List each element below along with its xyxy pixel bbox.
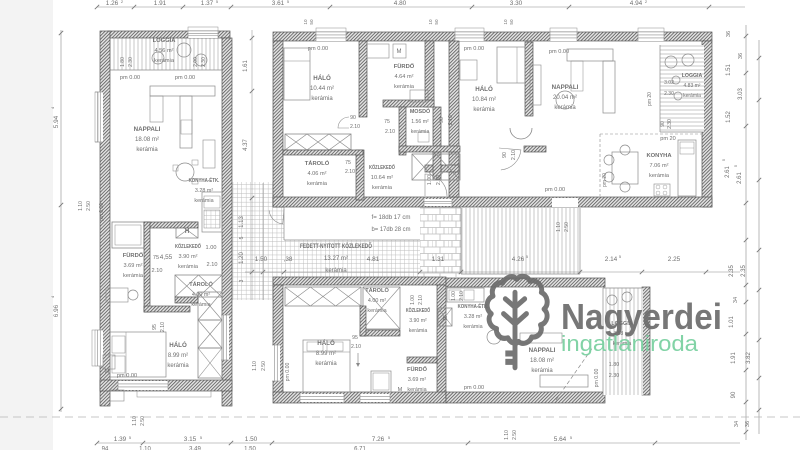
svg-text:4.83 m²: 4.83 m² bbox=[684, 83, 701, 89]
svg-text:kerámia: kerámia bbox=[194, 198, 213, 204]
svg-text:kerámia: kerámia bbox=[372, 185, 393, 191]
svg-text:FÜRDŐ: FÜRDŐ bbox=[407, 366, 428, 373]
svg-text:2.30: 2.30 bbox=[609, 373, 620, 379]
svg-text:1.00: 1.00 bbox=[206, 245, 217, 251]
svg-text:1.13: 1.13 bbox=[239, 216, 245, 228]
svg-text:5: 5 bbox=[239, 236, 245, 239]
svg-text:1.52: 1.52 bbox=[726, 111, 732, 123]
svg-text:2.35: 2.35 bbox=[741, 265, 747, 277]
svg-text:1.80: 1.80 bbox=[609, 362, 620, 368]
svg-text:90: 90 bbox=[731, 391, 737, 398]
svg-text:pm 0.00: pm 0.00 bbox=[99, 203, 105, 221]
svg-text:4.64 m²: 4.64 m² bbox=[395, 74, 414, 80]
svg-text:kerámia: kerámia bbox=[394, 84, 415, 90]
svg-text:1.20: 1.20 bbox=[239, 252, 245, 264]
svg-text:pm 0.00: pm 0.00 bbox=[285, 363, 291, 382]
svg-text:10.44 m²: 10.44 m² bbox=[310, 86, 334, 92]
svg-text:3.69 m²: 3.69 m² bbox=[408, 377, 426, 383]
svg-text:3.28 m²: 3.28 m² bbox=[195, 188, 213, 194]
svg-text:34: 34 bbox=[734, 421, 740, 427]
svg-text:1.10: 1.10 bbox=[556, 222, 562, 232]
svg-text:1.10: 1.10 bbox=[139, 447, 151, 450]
svg-text:H: H bbox=[185, 229, 189, 235]
svg-text:kerámia: kerámia bbox=[409, 328, 428, 334]
svg-text:1.10: 1.10 bbox=[504, 430, 510, 440]
svg-text:18.08 m²: 18.08 m² bbox=[135, 137, 159, 143]
svg-text:75: 75 bbox=[153, 255, 159, 261]
svg-text:5.64: 5.64 bbox=[554, 436, 567, 443]
svg-text:HÁLÓ: HÁLÓ bbox=[313, 74, 331, 82]
svg-text:3.30: 3.30 bbox=[510, 0, 523, 7]
svg-text:3.02: 3.02 bbox=[664, 80, 674, 86]
svg-text:FÜRDŐ: FÜRDŐ bbox=[123, 252, 144, 259]
svg-text:2.25: 2.25 bbox=[668, 256, 681, 263]
svg-text:90: 90 bbox=[502, 152, 508, 158]
svg-text:3.03: 3.03 bbox=[738, 88, 744, 100]
svg-text:7.06 m²: 7.06 m² bbox=[650, 163, 669, 169]
svg-text:2.30: 2.30 bbox=[128, 57, 134, 67]
svg-text:95: 95 bbox=[152, 324, 158, 330]
svg-text:kerámia: kerámia bbox=[307, 181, 328, 187]
svg-text:50: 50 bbox=[509, 19, 514, 25]
svg-text:34: 34 bbox=[733, 297, 739, 303]
svg-text:2.10: 2.10 bbox=[160, 322, 166, 332]
svg-text:pm 0.00: pm 0.00 bbox=[594, 369, 600, 388]
svg-text:2.10: 2.10 bbox=[351, 344, 361, 350]
svg-text:kerámia: kerámia bbox=[554, 105, 576, 111]
svg-text:1.10: 1.10 bbox=[132, 416, 138, 426]
svg-text:KONYHA-ÉTK.: KONYHA-ÉTK. bbox=[458, 302, 489, 310]
svg-text:pm 20: pm 20 bbox=[602, 173, 608, 187]
svg-text:4.80: 4.80 bbox=[394, 0, 407, 7]
svg-text:LOGGIA: LOGGIA bbox=[153, 38, 177, 44]
svg-text:3.61: 3.61 bbox=[272, 0, 285, 7]
svg-text:NAPPALI: NAPPALI bbox=[134, 126, 161, 133]
svg-text:2.30: 2.30 bbox=[664, 91, 674, 97]
svg-text:50: 50 bbox=[434, 19, 439, 25]
svg-text:kerámia: kerámia bbox=[367, 308, 386, 314]
svg-text:KÖZLEKEDŐ: KÖZLEKEDŐ bbox=[369, 164, 395, 171]
svg-text:ingatlaniroda: ingatlaniroda bbox=[561, 331, 699, 356]
svg-text:2.50: 2.50 bbox=[564, 222, 570, 232]
svg-text:kerámia: kerámia bbox=[178, 264, 199, 270]
svg-text:KONYHA-ÉTK.: KONYHA-ÉTK. bbox=[189, 176, 220, 184]
svg-text:2.00: 2.00 bbox=[193, 57, 199, 67]
svg-text:2.14: 2.14 bbox=[605, 256, 618, 263]
svg-text:2.50: 2.50 bbox=[261, 361, 267, 371]
svg-text:kerámia: kerámia bbox=[325, 268, 347, 274]
svg-text:3.82: 3.82 bbox=[746, 352, 752, 364]
svg-text:36: 36 bbox=[726, 31, 732, 37]
svg-text:M: M bbox=[397, 49, 402, 55]
svg-text:5.94: 5.94 bbox=[53, 115, 60, 128]
svg-text:2.10: 2.10 bbox=[436, 175, 442, 185]
svg-text:94: 94 bbox=[102, 447, 109, 450]
svg-text:TÁROLÓ: TÁROLÓ bbox=[365, 286, 389, 294]
svg-text:NAPPALI: NAPPALI bbox=[552, 84, 579, 91]
svg-text:4,55: 4,55 bbox=[160, 254, 173, 261]
svg-text:1.61: 1.61 bbox=[243, 60, 249, 72]
svg-text:6.71: 6.71 bbox=[354, 447, 366, 450]
svg-text:1.50: 1.50 bbox=[255, 256, 268, 263]
svg-text:pm 0.00: pm 0.00 bbox=[175, 75, 195, 81]
svg-text:4.56 m²: 4.56 m² bbox=[155, 48, 174, 54]
svg-text:75: 75 bbox=[345, 160, 351, 166]
svg-text:2.61: 2.61 bbox=[725, 166, 731, 178]
svg-text:3: 3 bbox=[239, 279, 245, 282]
svg-text:LOGGIA: LOGGIA bbox=[682, 73, 703, 79]
svg-text:NAPPALI: NAPPALI bbox=[529, 347, 556, 354]
svg-text:1.50: 1.50 bbox=[245, 436, 258, 443]
svg-text:7.26: 7.26 bbox=[372, 436, 385, 443]
svg-text:3.49: 3.49 bbox=[189, 447, 201, 450]
svg-text:TÁROLÓ: TÁROLÓ bbox=[305, 159, 330, 167]
svg-text:KÖZLEKEDŐ: KÖZLEKEDŐ bbox=[175, 243, 201, 250]
svg-text:4.37: 4.37 bbox=[243, 139, 249, 151]
svg-text:kerámia: kerámia bbox=[683, 93, 701, 99]
svg-text:M: M bbox=[398, 387, 403, 393]
svg-text:10.84 m²: 10.84 m² bbox=[472, 97, 496, 103]
svg-text:36: 36 bbox=[738, 53, 744, 59]
svg-text:1.26: 1.26 bbox=[106, 0, 119, 7]
svg-text:2.10: 2.10 bbox=[448, 115, 454, 125]
svg-text:4.81: 4.81 bbox=[367, 256, 380, 263]
svg-text:kerámia: kerámia bbox=[649, 173, 670, 179]
svg-text:pm 0.00: pm 0.00 bbox=[464, 385, 484, 391]
svg-text:4.06 m²: 4.06 m² bbox=[308, 171, 327, 177]
svg-text:H: H bbox=[443, 316, 447, 322]
svg-text:90: 90 bbox=[439, 117, 445, 123]
svg-text:pm 0.00: pm 0.00 bbox=[545, 187, 565, 193]
svg-text:3.15: 3.15 bbox=[184, 436, 197, 443]
svg-text:HÁLÓ: HÁLÓ bbox=[169, 341, 187, 349]
svg-text:18.08 m²: 18.08 m² bbox=[530, 358, 554, 364]
svg-text:KONYHA: KONYHA bbox=[646, 153, 672, 159]
svg-text:1.56 m²: 1.56 m² bbox=[411, 119, 429, 125]
svg-text:50: 50 bbox=[309, 19, 314, 25]
svg-text:1.10: 1.10 bbox=[78, 201, 84, 211]
svg-text:2.10: 2.10 bbox=[385, 129, 395, 135]
svg-text:kerámia: kerámia bbox=[463, 324, 482, 330]
svg-text:2.35: 2.35 bbox=[729, 265, 735, 277]
svg-text:1.01: 1.01 bbox=[729, 316, 735, 328]
svg-text:1.50: 1.50 bbox=[244, 447, 256, 450]
svg-text:2.30: 2.30 bbox=[667, 119, 673, 129]
svg-text:36: 36 bbox=[745, 421, 751, 427]
svg-text:4.00 m²: 4.00 m² bbox=[368, 298, 386, 304]
svg-text:10: 10 bbox=[428, 19, 433, 25]
svg-text:2.30: 2.30 bbox=[201, 57, 207, 67]
svg-text:2.50: 2.50 bbox=[140, 416, 146, 426]
svg-text:8.99 m²: 8.99 m² bbox=[168, 353, 188, 359]
svg-text:75: 75 bbox=[384, 119, 390, 125]
svg-text:kerámia: kerámia bbox=[167, 363, 189, 369]
svg-text:2.10: 2.10 bbox=[418, 295, 424, 305]
svg-text:KÖZLEKEDŐ: KÖZLEKEDŐ bbox=[406, 307, 430, 314]
svg-text:pm 20: pm 20 bbox=[647, 92, 653, 106]
svg-text:,38: ,38 bbox=[284, 256, 293, 263]
svg-text:pm 0.00: pm 0.00 bbox=[308, 46, 328, 52]
svg-text:kerámia: kerámia bbox=[154, 58, 175, 64]
svg-text:1.00: 1.00 bbox=[410, 295, 416, 305]
svg-text:1.00: 1.00 bbox=[427, 175, 433, 185]
svg-text:pm 0.00: pm 0.00 bbox=[549, 49, 569, 55]
svg-text:M: M bbox=[105, 369, 110, 375]
svg-text:13.27 m²: 13.27 m² bbox=[324, 256, 348, 262]
svg-text:2.10: 2.10 bbox=[345, 169, 355, 175]
svg-text:f= 18db 17 cm: f= 18db 17 cm bbox=[372, 215, 411, 221]
svg-text:3.69 m²: 3.69 m² bbox=[124, 263, 143, 269]
svg-text:3.28 m²: 3.28 m² bbox=[464, 314, 482, 320]
svg-text:4.26: 4.26 bbox=[512, 256, 525, 263]
svg-text:kerámia: kerámia bbox=[531, 368, 553, 374]
svg-text:1.91: 1.91 bbox=[731, 352, 737, 364]
svg-text:2.10: 2.10 bbox=[207, 262, 218, 268]
svg-text:pm 0.00: pm 0.00 bbox=[120, 75, 140, 81]
svg-text:1.91: 1.91 bbox=[154, 0, 167, 7]
svg-text:2.50: 2.50 bbox=[86, 201, 92, 211]
svg-text:pm 0.00: pm 0.00 bbox=[117, 373, 137, 379]
svg-text:10: 10 bbox=[303, 19, 308, 25]
svg-text:6.96: 6.96 bbox=[53, 304, 60, 317]
svg-text:3.90 m²: 3.90 m² bbox=[409, 318, 427, 324]
svg-text:pm 20: pm 20 bbox=[660, 136, 676, 142]
svg-text:10.64 m²: 10.64 m² bbox=[371, 175, 394, 181]
svg-text:b= 17db 28 cm: b= 17db 28 cm bbox=[372, 227, 411, 233]
svg-text:95: 95 bbox=[352, 335, 358, 341]
svg-text:1.39: 1.39 bbox=[114, 436, 127, 443]
svg-text:1.31: 1.31 bbox=[432, 256, 445, 263]
svg-text:kerámia: kerámia bbox=[136, 147, 158, 153]
svg-text:1.51: 1.51 bbox=[726, 64, 732, 76]
svg-text:FÜRDŐ: FÜRDŐ bbox=[394, 63, 415, 70]
svg-text:FEDETT-NYITOTT KÖZLEKEDŐ: FEDETT-NYITOTT KÖZLEKEDŐ bbox=[300, 243, 372, 250]
svg-text:2.10: 2.10 bbox=[350, 124, 360, 130]
svg-text:90: 90 bbox=[350, 115, 356, 121]
svg-text:1.80: 1.80 bbox=[120, 57, 126, 67]
svg-text:2.50: 2.50 bbox=[512, 430, 518, 440]
svg-text:MOSDÓ: MOSDÓ bbox=[410, 107, 430, 115]
svg-text:2.61: 2.61 bbox=[737, 172, 743, 184]
svg-text:2.10: 2.10 bbox=[152, 268, 163, 274]
svg-text:2.10: 2.10 bbox=[511, 150, 517, 160]
svg-text:4.94: 4.94 bbox=[630, 0, 643, 7]
svg-text:kerámia: kerámia bbox=[123, 273, 144, 279]
svg-text:kerámia: kerámia bbox=[315, 361, 337, 367]
svg-text:90: 90 bbox=[660, 121, 666, 127]
svg-text:kerámia: kerámia bbox=[473, 107, 495, 113]
svg-text:pm 0.00: pm 0.00 bbox=[464, 46, 484, 52]
svg-text:kerámia: kerámia bbox=[311, 96, 333, 102]
svg-text:1.00: 1.00 bbox=[451, 291, 457, 301]
svg-text:1.10: 1.10 bbox=[252, 361, 258, 371]
svg-text:HÁLÓ: HÁLÓ bbox=[475, 85, 493, 93]
svg-text:kerámia: kerámia bbox=[407, 387, 426, 393]
svg-text:3.90 m²: 3.90 m² bbox=[179, 254, 198, 260]
svg-text:10: 10 bbox=[503, 19, 508, 25]
svg-text:1.37: 1.37 bbox=[201, 0, 214, 7]
